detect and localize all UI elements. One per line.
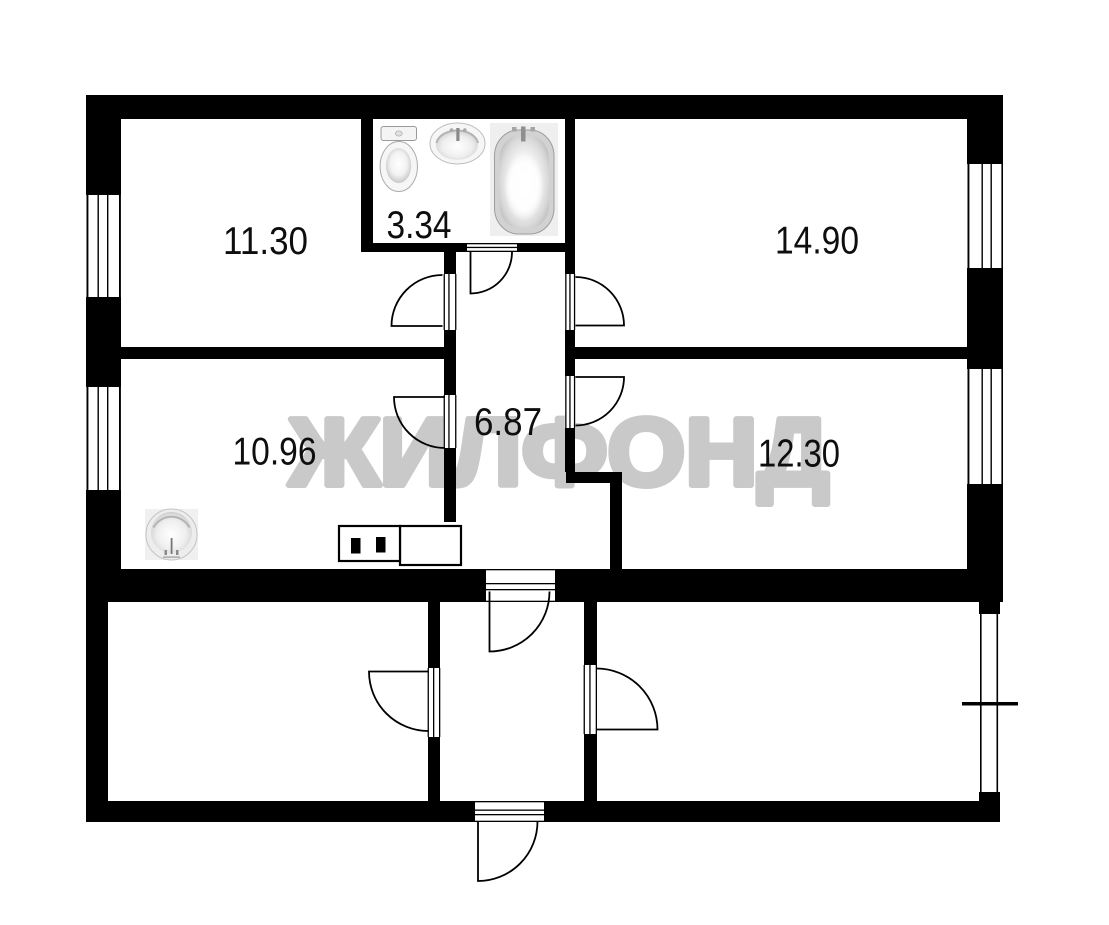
svg-text:12.30: 12.30	[758, 433, 840, 476]
svg-text:3.34: 3.34	[387, 204, 452, 247]
svg-text:11.30: 11.30	[223, 220, 308, 263]
svg-text:6.87: 6.87	[474, 401, 542, 444]
svg-text:10.96: 10.96	[233, 431, 317, 474]
svg-text:ЖИЛФОНД: ЖИЛФОНД	[288, 399, 829, 506]
svg-text:14.90: 14.90	[775, 220, 859, 263]
